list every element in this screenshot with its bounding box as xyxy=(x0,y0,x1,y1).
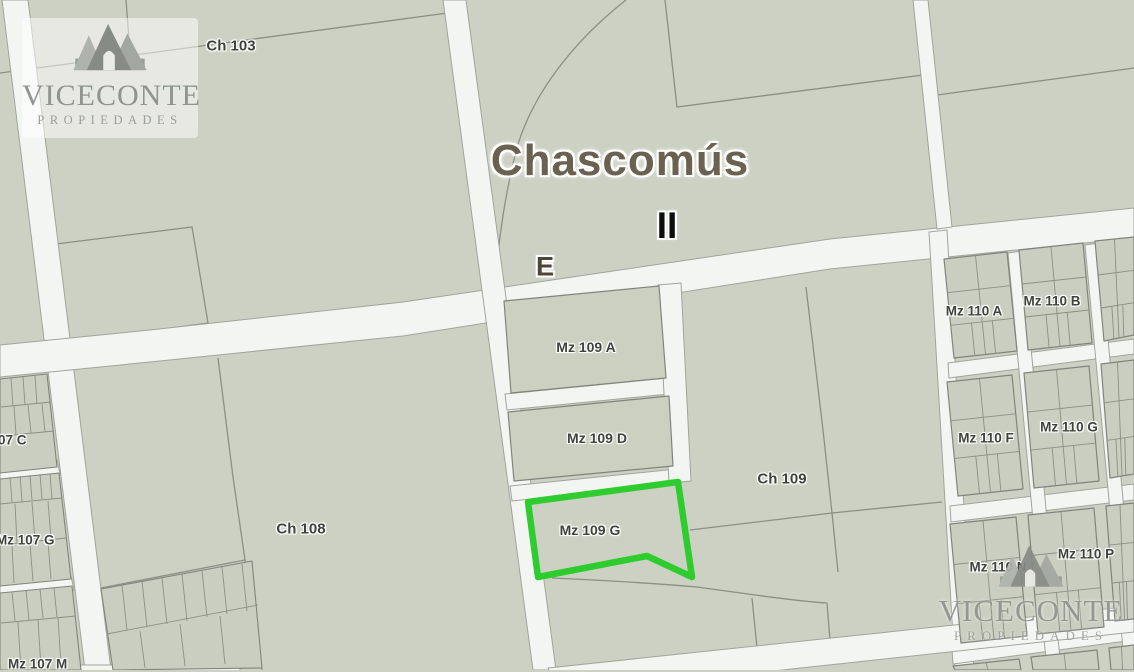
city-title: Chascomús xyxy=(491,136,749,186)
brand-name: VICECONTE xyxy=(938,595,1124,626)
label-mz109d: Mz 109 D xyxy=(567,430,627,446)
label-ch109: Ch 109 xyxy=(757,471,806,488)
parcel-mz107c xyxy=(0,374,57,473)
label-ch108: Ch 108 xyxy=(276,521,325,538)
viceconte-logo-bottom-right: VICECONTE PROPIEDADES xyxy=(938,542,1124,662)
mountains-icon xyxy=(995,542,1067,590)
corner-label-e: E xyxy=(536,252,554,283)
label-ch103: Ch 103 xyxy=(206,38,255,55)
label-mz110f: Mz 110 F xyxy=(958,431,1014,446)
brand-tagline: PROPIEDADES xyxy=(22,114,198,127)
brand-tagline: PROPIEDADES xyxy=(938,629,1124,642)
label-mz110a: Mz 110 A xyxy=(946,304,1003,319)
label-mz107g: Mz 107 G xyxy=(0,533,55,548)
label-mz107c: 07 C xyxy=(0,433,27,448)
viceconte-logo-top-left: VICECONTE PROPIEDADES xyxy=(22,18,198,138)
label-mz110b: Mz 110 B xyxy=(1023,294,1080,309)
label-mz107m: Mz 107 M xyxy=(8,657,67,672)
label-mz109a: Mz 109 A xyxy=(556,339,615,355)
label-mz109g: Mz 109 G xyxy=(560,522,621,538)
label-mz110g: Mz 110 G xyxy=(1040,420,1098,435)
zone-label: II xyxy=(657,205,678,247)
cadastral-map: Chascomús II E Ch 103 Ch 108 Ch 109 Mz 1… xyxy=(0,0,1134,670)
brand-name: VICECONTE xyxy=(22,81,198,111)
mountains-icon xyxy=(68,20,152,74)
